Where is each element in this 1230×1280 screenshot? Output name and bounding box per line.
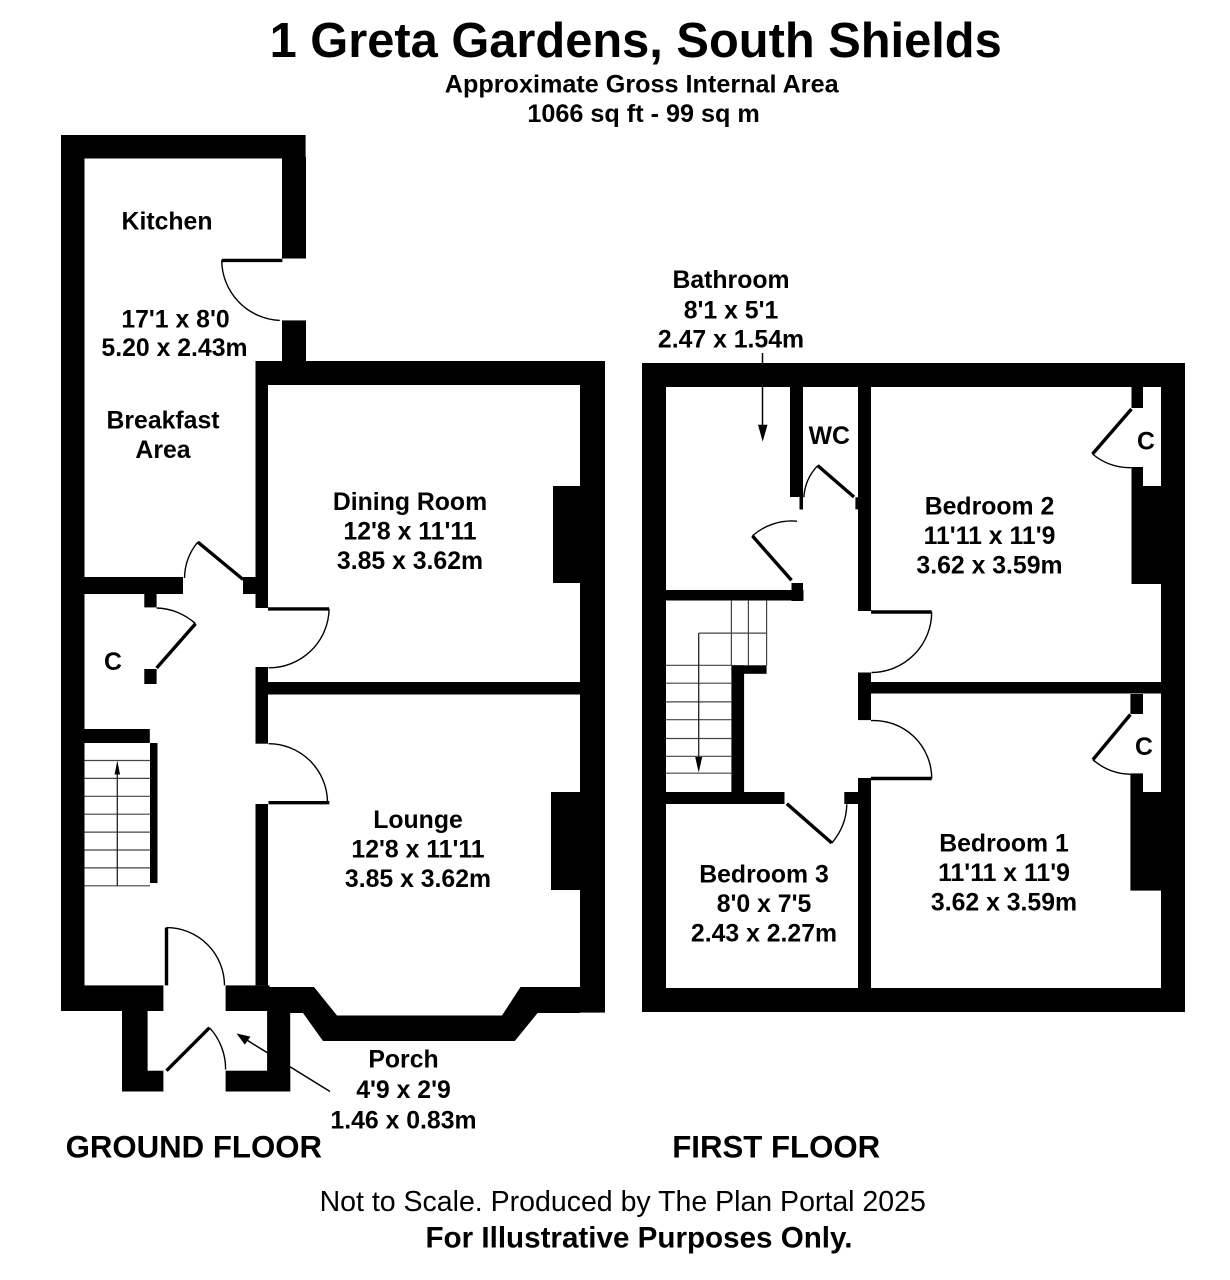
svg-text:Approximate Gross Internal Are: Approximate Gross Internal Area	[445, 71, 840, 99]
svg-text:Bedroom 1: Bedroom 1	[939, 831, 1069, 858]
svg-text:17'1 x 8'0: 17'1 x 8'0	[121, 307, 229, 334]
svg-text:1066 sq ft - 99 sq m: 1066 sq ft - 99 sq m	[527, 100, 759, 128]
svg-text:11'11 x 11'9: 11'11 x 11'9	[938, 860, 1070, 887]
svg-text:1.46 x 0.83m: 1.46 x 0.83m	[330, 1108, 476, 1135]
svg-text:Dining Room: Dining Room	[333, 489, 487, 516]
svg-text:C: C	[1137, 429, 1155, 456]
svg-text:Bedroom 3: Bedroom 3	[699, 862, 829, 889]
svg-text:3.85 x 3.62m: 3.85 x 3.62m	[337, 548, 483, 575]
svg-text:2.43 x 2.27m: 2.43 x 2.27m	[691, 921, 837, 948]
svg-text:C: C	[1135, 734, 1153, 761]
svg-text:3.62 x 3.59m: 3.62 x 3.59m	[931, 890, 1077, 917]
svg-text:For Illustrative Purposes Only: For Illustrative Purposes Only.	[425, 1222, 852, 1255]
svg-text:Not to Scale. Produced by The: Not to Scale. Produced by The Plan Porta…	[320, 1186, 926, 1218]
svg-text:Bathroom: Bathroom	[672, 267, 789, 294]
svg-text:Porch: Porch	[368, 1047, 438, 1074]
svg-text:Breakfast: Breakfast	[106, 408, 219, 435]
svg-text:1 Greta Gardens, South Shields: 1 Greta Gardens, South Shields	[270, 14, 1002, 68]
svg-text:3.62 x 3.59m: 3.62 x 3.59m	[916, 553, 1062, 580]
svg-text:C: C	[104, 649, 122, 676]
svg-text:11'11 x 11'9: 11'11 x 11'9	[924, 523, 1056, 550]
svg-text:Area: Area	[135, 437, 190, 464]
svg-text:12'8 x 11'11: 12'8 x 11'11	[351, 837, 484, 864]
svg-text:GROUND FLOOR: GROUND FLOOR	[66, 1130, 322, 1165]
svg-text:3.85 x 3.62m: 3.85 x 3.62m	[345, 866, 491, 893]
svg-text:2.47 x 1.54m: 2.47 x 1.54m	[658, 327, 804, 354]
svg-text:12'8 x 11'11: 12'8 x 11'11	[343, 519, 476, 546]
svg-text:8'0 x 7'5: 8'0 x 7'5	[717, 891, 812, 918]
svg-text:FIRST FLOOR: FIRST FLOOR	[672, 1130, 880, 1165]
svg-text:Bedroom 2: Bedroom 2	[925, 494, 1055, 521]
svg-text:5.20 x 2.43m: 5.20 x 2.43m	[101, 335, 247, 362]
svg-text:Kitchen: Kitchen	[122, 209, 213, 236]
svg-text:WC: WC	[809, 423, 850, 450]
svg-text:4'9 x 2'9: 4'9 x 2'9	[356, 1077, 451, 1104]
svg-text:8'1 x 5'1: 8'1 x 5'1	[684, 298, 779, 325]
svg-text:Lounge: Lounge	[373, 807, 463, 834]
